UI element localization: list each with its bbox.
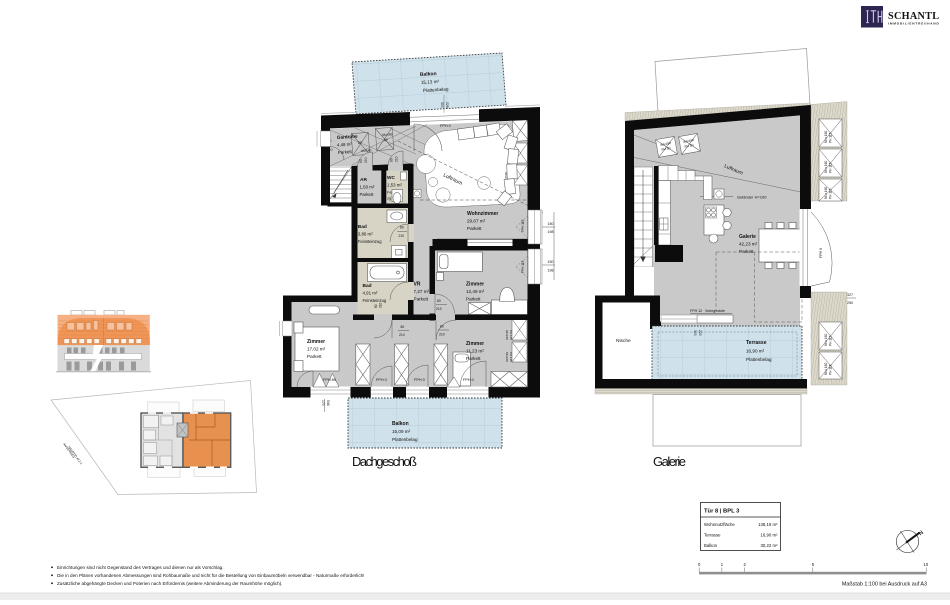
svg-text:80: 80 <box>400 226 404 230</box>
svg-text:300: 300 <box>440 102 444 108</box>
svg-text:84 x 160: 84 x 160 <box>824 187 828 199</box>
svg-text:Wohnzimmer: Wohnzimmer <box>467 211 498 217</box>
svg-text:17,02 m²: 17,02 m² <box>307 347 326 352</box>
svg-text:29,67 m²: 29,67 m² <box>467 219 486 224</box>
svg-text:Geländer H=100: Geländer H=100 <box>737 195 767 200</box>
svg-text:80: 80 <box>401 325 405 329</box>
svg-text:11,23 m²: 11,23 m² <box>466 349 484 354</box>
svg-text:150: 150 <box>548 222 554 226</box>
svg-text:210: 210 <box>364 157 368 163</box>
svg-text:Terrasse: Terrasse <box>746 340 767 346</box>
svg-text:Parkett: Parkett <box>467 226 482 231</box>
svg-text:DF: DF <box>358 141 363 145</box>
svg-text:210: 210 <box>395 156 399 162</box>
svg-text:FPH 0: FPH 0 <box>376 378 387 382</box>
svg-text:PH 115: PH 115 <box>829 188 833 199</box>
svg-text:Parkett: Parkett <box>338 149 353 155</box>
svg-text:PH 115: PH 115 <box>829 162 833 173</box>
svg-text:Zusätzliche abgehängte Decken: Zusätzliche abgehängte Decken und Poteri… <box>57 581 282 586</box>
svg-text:FPH 0: FPH 0 <box>463 378 474 382</box>
svg-text:Bad: Bad <box>363 283 372 289</box>
svg-text:210: 210 <box>439 333 445 337</box>
svg-text:FPH 0: FPH 0 <box>819 248 823 258</box>
svg-text:Balkon: Balkon <box>392 421 409 427</box>
svg-text:Plattenbelag: Plattenbelag <box>392 437 418 442</box>
svg-text:229: 229 <box>445 102 449 108</box>
svg-text:SCHANTL: SCHANTL <box>888 11 939 22</box>
svg-text:Parkett: Parkett <box>739 249 754 254</box>
svg-text:VR: VR <box>414 282 421 288</box>
svg-text:PH 115: PH 115 <box>829 364 833 375</box>
svg-text:12,49 m²: 12,49 m² <box>466 289 485 294</box>
svg-text:210: 210 <box>436 307 442 311</box>
svg-text:1,53 m²: 1,53 m² <box>387 183 402 188</box>
svg-text:80: 80 <box>374 304 378 308</box>
svg-text:Galerie: Galerie <box>653 454 686 469</box>
svg-text:7,27 m²: 7,27 m² <box>414 289 430 294</box>
svg-text:150: 150 <box>548 260 554 264</box>
svg-text:80: 80 <box>437 299 441 303</box>
svg-text:FPH 12: FPH 12 <box>690 309 702 313</box>
svg-text:FPH 0: FPH 0 <box>440 124 451 128</box>
svg-text:1,50 m²: 1,50 m² <box>360 185 375 190</box>
svg-text:80: 80 <box>359 159 363 163</box>
svg-text:Zimmer: Zimmer <box>466 341 484 347</box>
svg-text:Parkett: Parkett <box>466 356 481 361</box>
svg-text:FPH 89: FPH 89 <box>323 378 336 382</box>
svg-text:Parkett: Parkett <box>414 297 429 302</box>
svg-text:3,86 m²: 3,86 m² <box>358 232 373 237</box>
svg-text:PH 115: PH 115 <box>509 330 513 340</box>
svg-text:16,90 m²: 16,90 m² <box>761 533 779 538</box>
svg-text:Bad: Bad <box>358 224 367 230</box>
svg-text:DF: DF <box>384 138 389 142</box>
svg-text:AR: AR <box>360 177 367 183</box>
svg-text:WC: WC <box>387 175 396 181</box>
svg-text:Parkett: Parkett <box>307 354 322 359</box>
svg-text:PH 115: PH 115 <box>829 132 833 143</box>
svg-text:FPH 0: FPH 0 <box>414 378 425 382</box>
svg-text:84x160: 84x160 <box>505 352 509 362</box>
svg-text:Balkon: Balkon <box>704 543 718 548</box>
svg-text:Plattenbelag: Plattenbelag <box>746 357 772 362</box>
svg-text:Balkon: Balkon <box>420 71 437 78</box>
svg-text:Einrichtungen sind nicht Gegen: Einrichtungen sind nicht Gegenstand des … <box>57 565 224 570</box>
svg-text:Die in den Plänen vorhandenen: Die in den Plänen vorhandenen Abmessunge… <box>57 573 364 578</box>
svg-text:Tür 8 | BPL 3: Tür 8 | BPL 3 <box>704 509 740 515</box>
svg-text:15,09 m²: 15,09 m² <box>392 429 411 434</box>
svg-text:94x160: 94x160 <box>505 330 509 340</box>
svg-text:84 x 160: 84 x 160 <box>824 334 828 346</box>
svg-text:FPH 115: FPH 115 <box>521 219 525 232</box>
svg-text:94x160: 94x160 <box>382 132 393 137</box>
svg-text:Zimmer: Zimmer <box>466 282 484 288</box>
svg-text:84 x 160: 84 x 160 <box>824 131 828 143</box>
svg-text:544: 544 <box>326 400 330 406</box>
svg-text:327: 327 <box>847 293 853 297</box>
svg-text:84 x 160: 84 x 160 <box>824 161 828 173</box>
svg-text:FPH 115: FPH 115 <box>521 260 525 273</box>
svg-text:80: 80 <box>440 325 444 329</box>
svg-text:Wohnnutzfläche: Wohnnutzfläche <box>704 522 735 527</box>
svg-text:PH 115: PH 115 <box>509 352 513 362</box>
svg-text:220: 220 <box>698 330 702 336</box>
svg-text:30,22 m²: 30,22 m² <box>761 543 779 548</box>
svg-text:4,91 m²: 4,91 m² <box>363 291 378 296</box>
svg-text:42,23 m²: 42,23 m² <box>739 242 758 247</box>
svg-text:210: 210 <box>399 234 405 238</box>
svg-text:zg: zg <box>387 196 391 201</box>
svg-text:16,90 m²: 16,90 m² <box>746 349 765 354</box>
svg-text:Feinsteinzug: Feinsteinzug <box>363 298 387 303</box>
svg-text:84 x 160: 84 x 160 <box>824 363 828 375</box>
svg-text:Vorlegestufe: Vorlegestufe <box>705 309 725 313</box>
svg-text:Nische: Nische <box>616 338 631 344</box>
svg-text:Maßstab 1:100 bei Ausdruck auf: Maßstab 1:100 bei Ausdruck auf A3 <box>842 582 927 588</box>
svg-text:Galerie: Galerie <box>739 234 756 240</box>
svg-text:300: 300 <box>693 330 697 336</box>
svg-text:138,19 m²: 138,19 m² <box>758 522 778 527</box>
svg-text:Parkett: Parkett <box>466 297 481 302</box>
svg-text:80: 80 <box>390 158 394 162</box>
svg-text:210: 210 <box>399 333 405 337</box>
svg-text:Parkett: Parkett <box>360 192 375 197</box>
svg-text:Feinsteinzug: Feinsteinzug <box>358 239 382 244</box>
svg-text:Zimmer: Zimmer <box>307 339 325 345</box>
svg-text:PH 115: PH 115 <box>829 335 833 346</box>
svg-text:Terrasse: Terrasse <box>704 533 721 538</box>
svg-text:IMMOBILIENTREUHAND: IMMOBILIENTREUHAND <box>888 22 939 26</box>
svg-text:198: 198 <box>548 230 554 234</box>
svg-text:210: 210 <box>379 302 383 308</box>
svg-text:Dachgeschoß: Dachgeschoß <box>352 454 417 469</box>
svg-text:198: 198 <box>548 269 554 273</box>
svg-text:10: 10 <box>924 562 929 567</box>
